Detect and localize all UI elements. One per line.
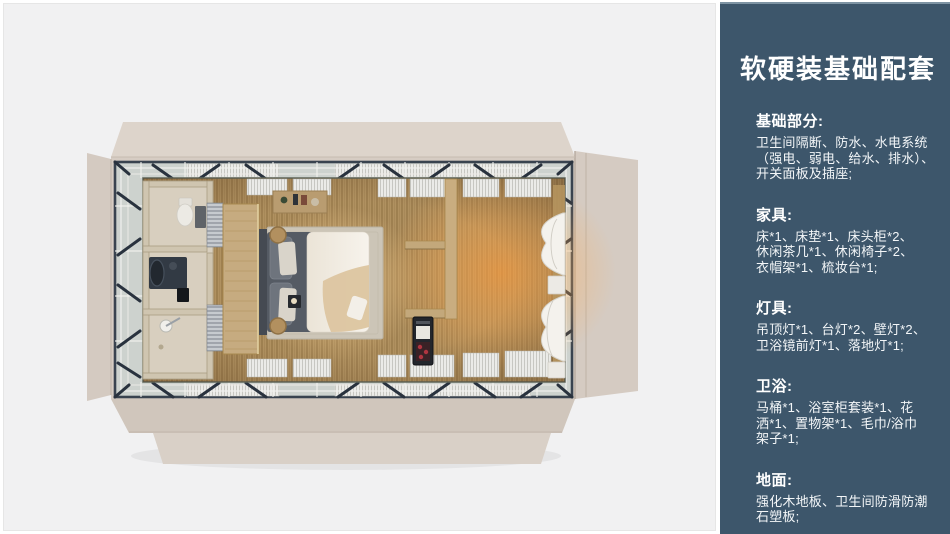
info-panel: 软硬装基础配套 基础部分: 卫生间隔断、防水、水电系统 （强电、弱电、给水、排水… (720, 2, 950, 534)
panel-title: 软硬装基础配套 (740, 49, 936, 86)
vanity-stool (177, 288, 189, 302)
section-furniture-heading: 家具: (756, 204, 936, 225)
sink-basin (169, 262, 177, 270)
section-basics-body: 卫生间隔断、防水、水电系统 （强电、弱电、给水、排水）、 开关面板及插座; (756, 135, 936, 182)
bedside-table (288, 295, 301, 308)
woven-pouf-bottom (270, 318, 286, 334)
wall-shelf (273, 191, 327, 213)
section-sanitary: 卫浴: 马桶*1、浴室柜套装*1、花 洒*1、置物架*1、毛巾/浴巾 架子*1; (756, 375, 936, 447)
section-lighting-heading: 灯具: (756, 297, 936, 318)
section-furniture: 家具: 床*1、床垫*1、床头柜*2、 休闲茶几*1、休闲椅子*2、 衣帽架*1… (756, 204, 936, 276)
section-flooring-body: 强化木地板、卫生间防滑防潮 石塑板; (756, 494, 936, 525)
section-basics: 基础部分: 卫生间隔断、防水、水电系统 （强电、弱电、给水、排水）、 开关面板及… (756, 110, 936, 182)
section-lighting: 灯具: 吊顶灯*1、台灯*2、壁灯*2、 卫浴镜前灯*1、落地灯*1; (756, 297, 936, 353)
vanity-mirror (150, 260, 164, 286)
section-sanitary-heading: 卫浴: (756, 375, 936, 396)
woven-pouf-top (270, 227, 286, 243)
bed-area (259, 227, 383, 339)
room-interior (143, 173, 616, 382)
slide: { "palette": { "page_bg": "#ffffff", "ca… (0, 0, 950, 534)
room-top-view-render (4, 4, 717, 532)
bathroom (143, 181, 223, 379)
wardrobe-divider (223, 204, 259, 354)
section-furniture-body: 床*1、床垫*1、床头柜*2、 休闲茶几*1、休闲椅子*2、 衣帽架*1、梳妆台… (756, 229, 936, 276)
section-flooring-heading: 地面: (756, 469, 936, 490)
section-basics-heading: 基础部分: (756, 110, 936, 131)
minibar-cabinet (413, 317, 433, 365)
white-side-table-top (548, 276, 565, 294)
render-canvas (3, 3, 716, 531)
section-lighting-body: 吊顶灯*1、台灯*2、壁灯*2、 卫浴镜前灯*1、落地灯*1; (756, 322, 936, 353)
white-side-table-bottom (548, 362, 565, 378)
section-sanitary-body: 马桶*1、浴室柜套装*1、花 洒*1、置物架*1、毛巾/浴巾 架子*1; (756, 400, 936, 447)
table-lamp (291, 298, 297, 304)
headboard (259, 229, 267, 335)
section-flooring: 地面: 强化木地板、卫生间防滑防潮 石塑板; (756, 469, 936, 525)
